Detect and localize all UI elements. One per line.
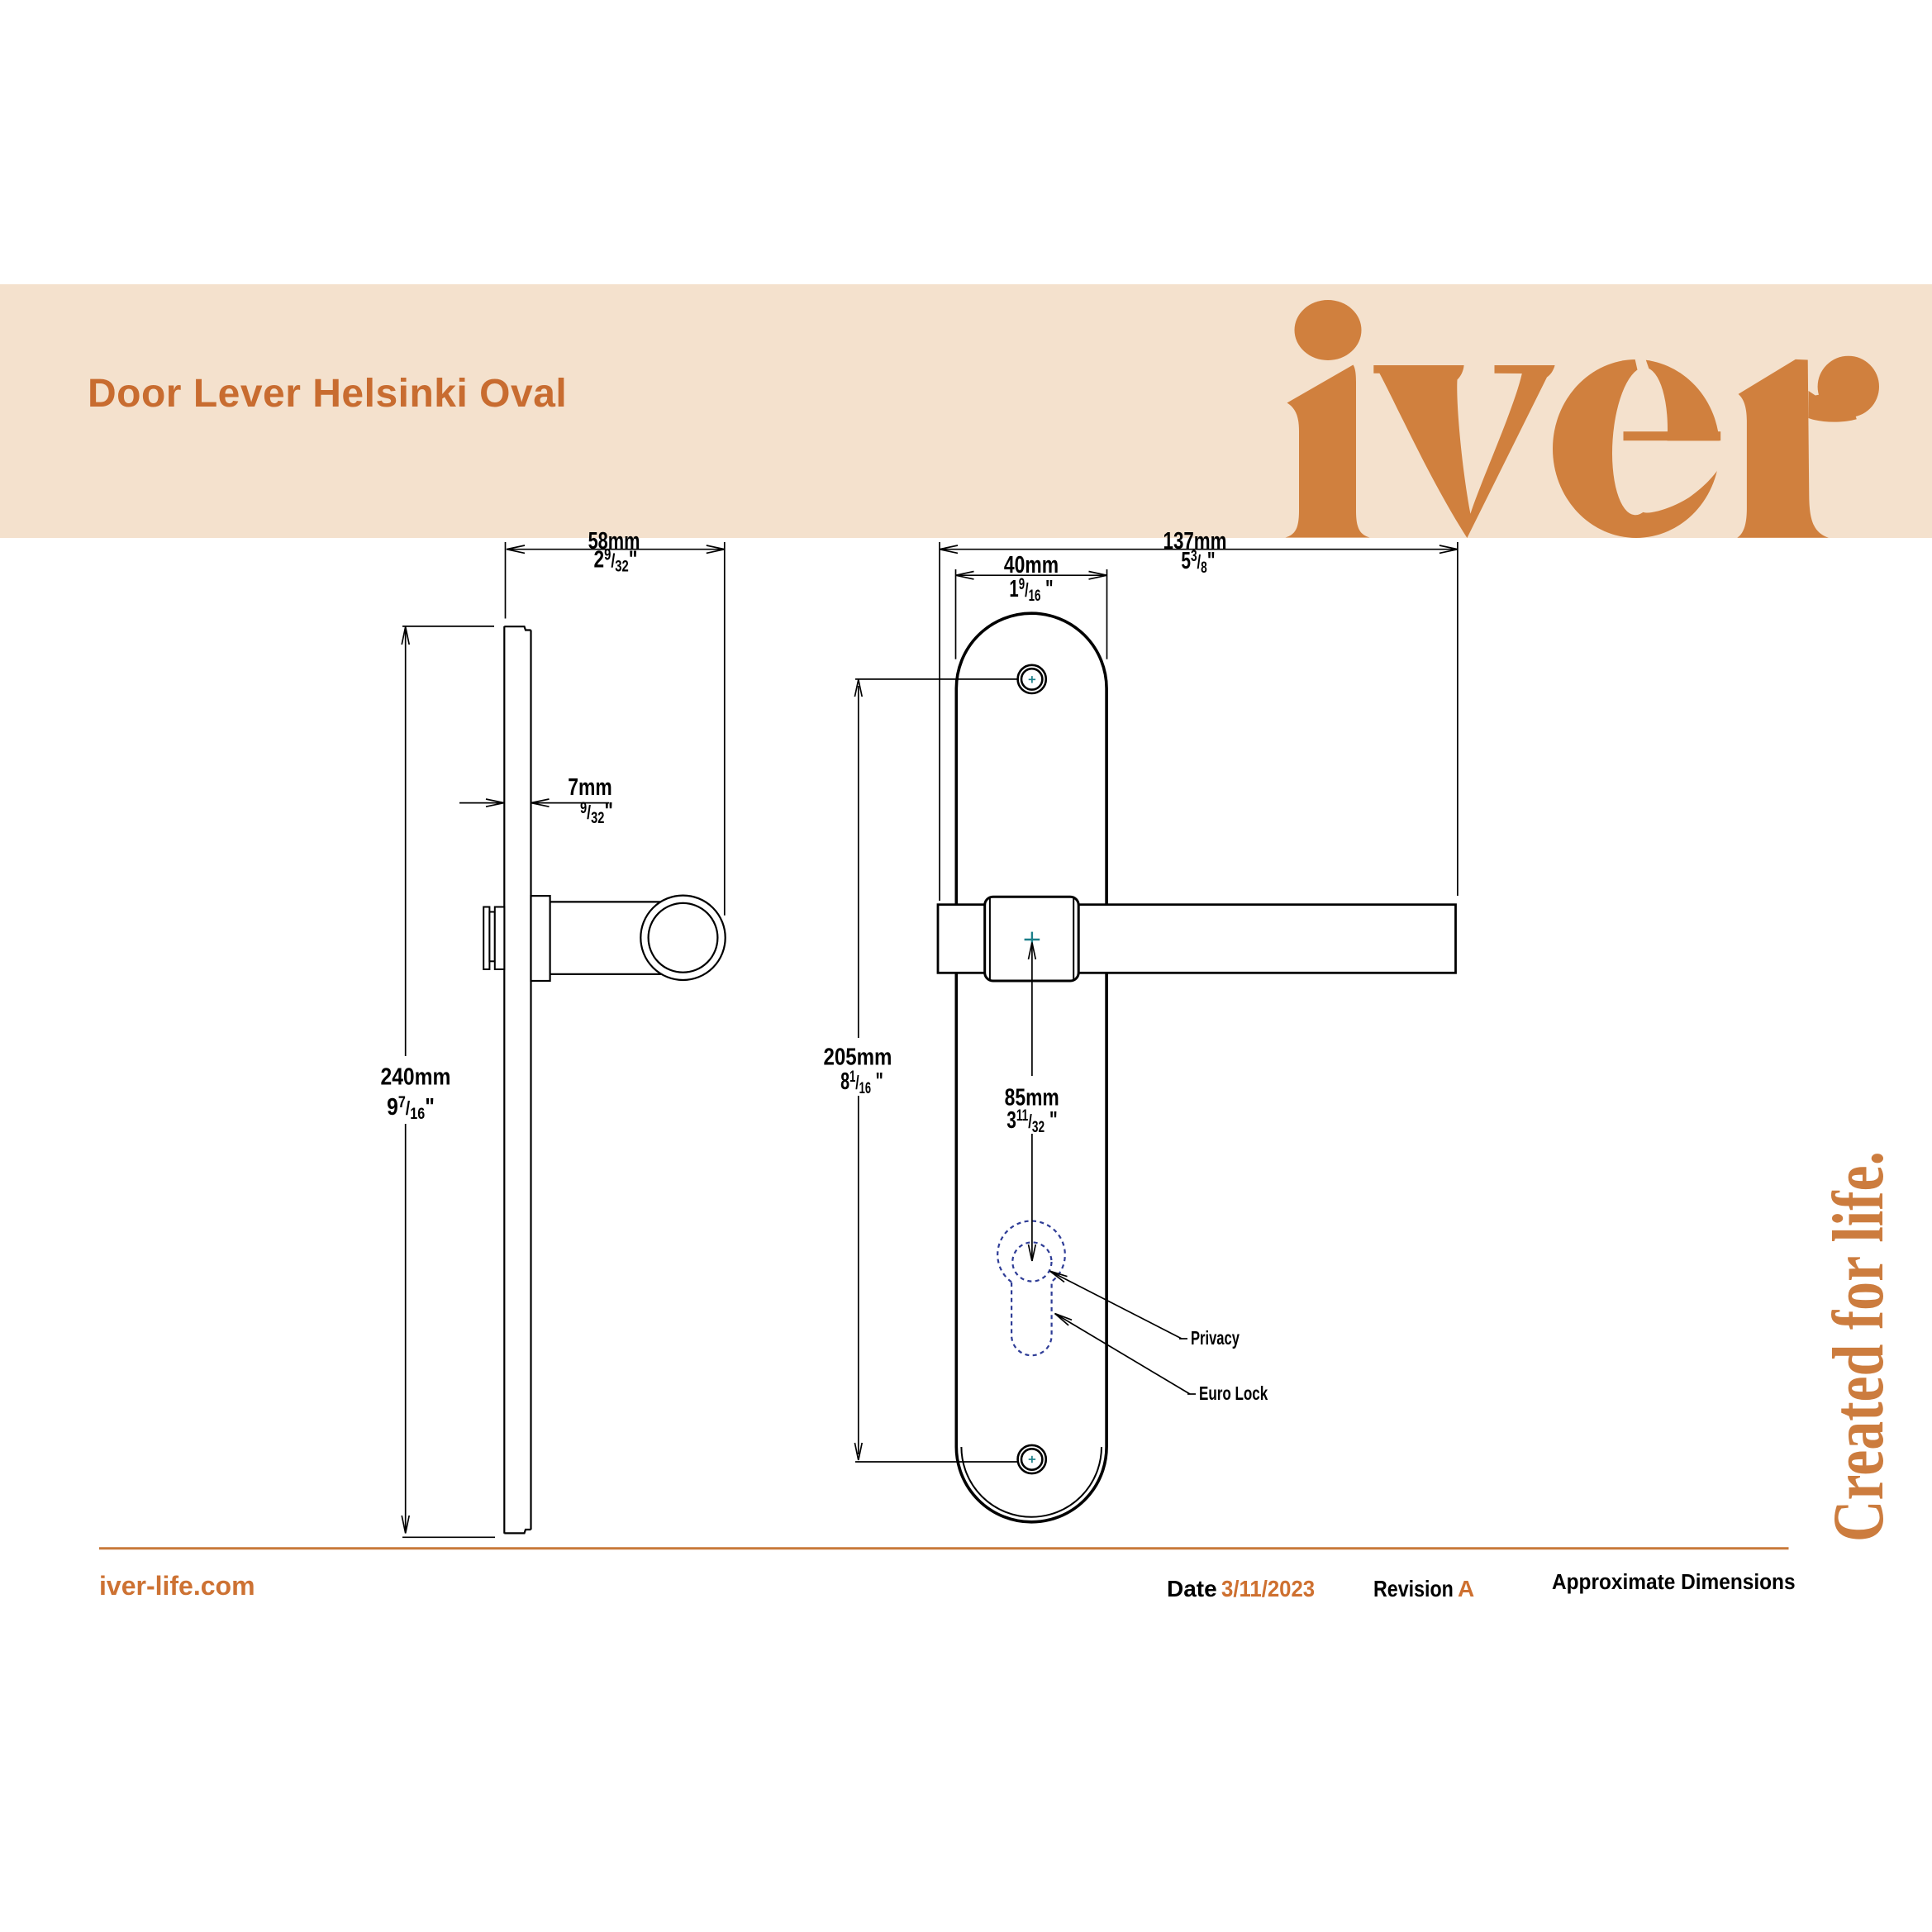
svg-text:205mm: 205mm <box>824 1043 892 1070</box>
svg-text:81/16 ": 81/16 " <box>840 1068 883 1097</box>
svg-text:97/16": 97/16" <box>387 1093 435 1123</box>
svg-text:Created for life.: Created for life. <box>1819 1151 1899 1542</box>
svg-text:3/11/2023: 3/11/2023 <box>1221 1576 1315 1601</box>
svg-text:Revision: Revision <box>1373 1577 1454 1601</box>
svg-text:Approximate Dimensions: Approximate Dimensions <box>1552 1570 1796 1594</box>
svg-text:Date: Date <box>1167 1576 1217 1601</box>
svg-text:19/16 ": 19/16 " <box>1009 576 1053 605</box>
svg-text:240mm: 240mm <box>381 1064 451 1090</box>
svg-text:40mm: 40mm <box>1004 550 1059 578</box>
svg-text:Privacy: Privacy <box>1191 1328 1240 1349</box>
svg-text:A: A <box>1458 1576 1474 1601</box>
svg-text:7mm: 7mm <box>568 773 611 800</box>
svg-text:Euro Lock: Euro Lock <box>1199 1384 1268 1405</box>
svg-text:iver-life.com: iver-life.com <box>99 1571 255 1601</box>
